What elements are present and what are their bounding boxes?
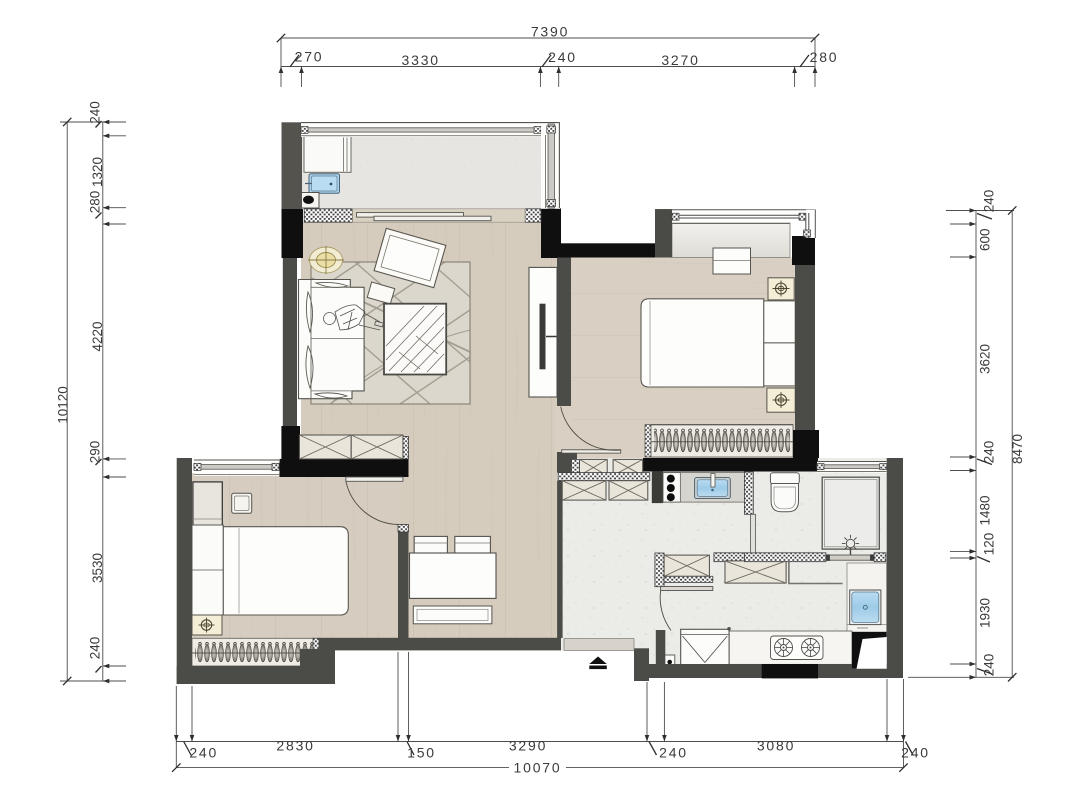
- svg-text:240: 240: [88, 637, 103, 660]
- svg-text:290: 290: [88, 441, 103, 464]
- svg-text:120: 120: [982, 533, 997, 556]
- svg-text:3290: 3290: [509, 738, 547, 754]
- svg-text:240: 240: [659, 745, 688, 761]
- svg-text:3330: 3330: [402, 52, 440, 68]
- svg-text:240: 240: [982, 654, 997, 677]
- svg-text:3080: 3080: [757, 738, 795, 754]
- svg-text:240: 240: [982, 190, 997, 213]
- svg-text:3620: 3620: [978, 344, 993, 374]
- svg-text:240: 240: [548, 49, 577, 65]
- svg-text:600: 600: [978, 228, 993, 251]
- svg-text:1320: 1320: [90, 157, 105, 187]
- svg-text:280: 280: [810, 49, 839, 65]
- svg-text:1480: 1480: [978, 495, 993, 525]
- svg-text:240: 240: [901, 745, 930, 761]
- svg-text:150: 150: [407, 745, 436, 761]
- svg-text:3270: 3270: [661, 52, 699, 68]
- svg-text:8470: 8470: [1010, 434, 1025, 464]
- svg-text:270: 270: [295, 49, 324, 65]
- svg-text:4220: 4220: [90, 321, 105, 351]
- svg-text:10070: 10070: [514, 760, 562, 776]
- svg-text:10120: 10120: [56, 386, 71, 424]
- svg-text:3530: 3530: [90, 553, 105, 583]
- svg-text:2830: 2830: [276, 738, 314, 754]
- svg-text:240: 240: [189, 745, 218, 761]
- svg-text:7390: 7390: [531, 24, 569, 40]
- svg-text:280: 280: [88, 191, 103, 214]
- svg-text:240: 240: [982, 441, 997, 464]
- svg-text:240: 240: [88, 101, 103, 124]
- svg-text:1930: 1930: [978, 598, 993, 628]
